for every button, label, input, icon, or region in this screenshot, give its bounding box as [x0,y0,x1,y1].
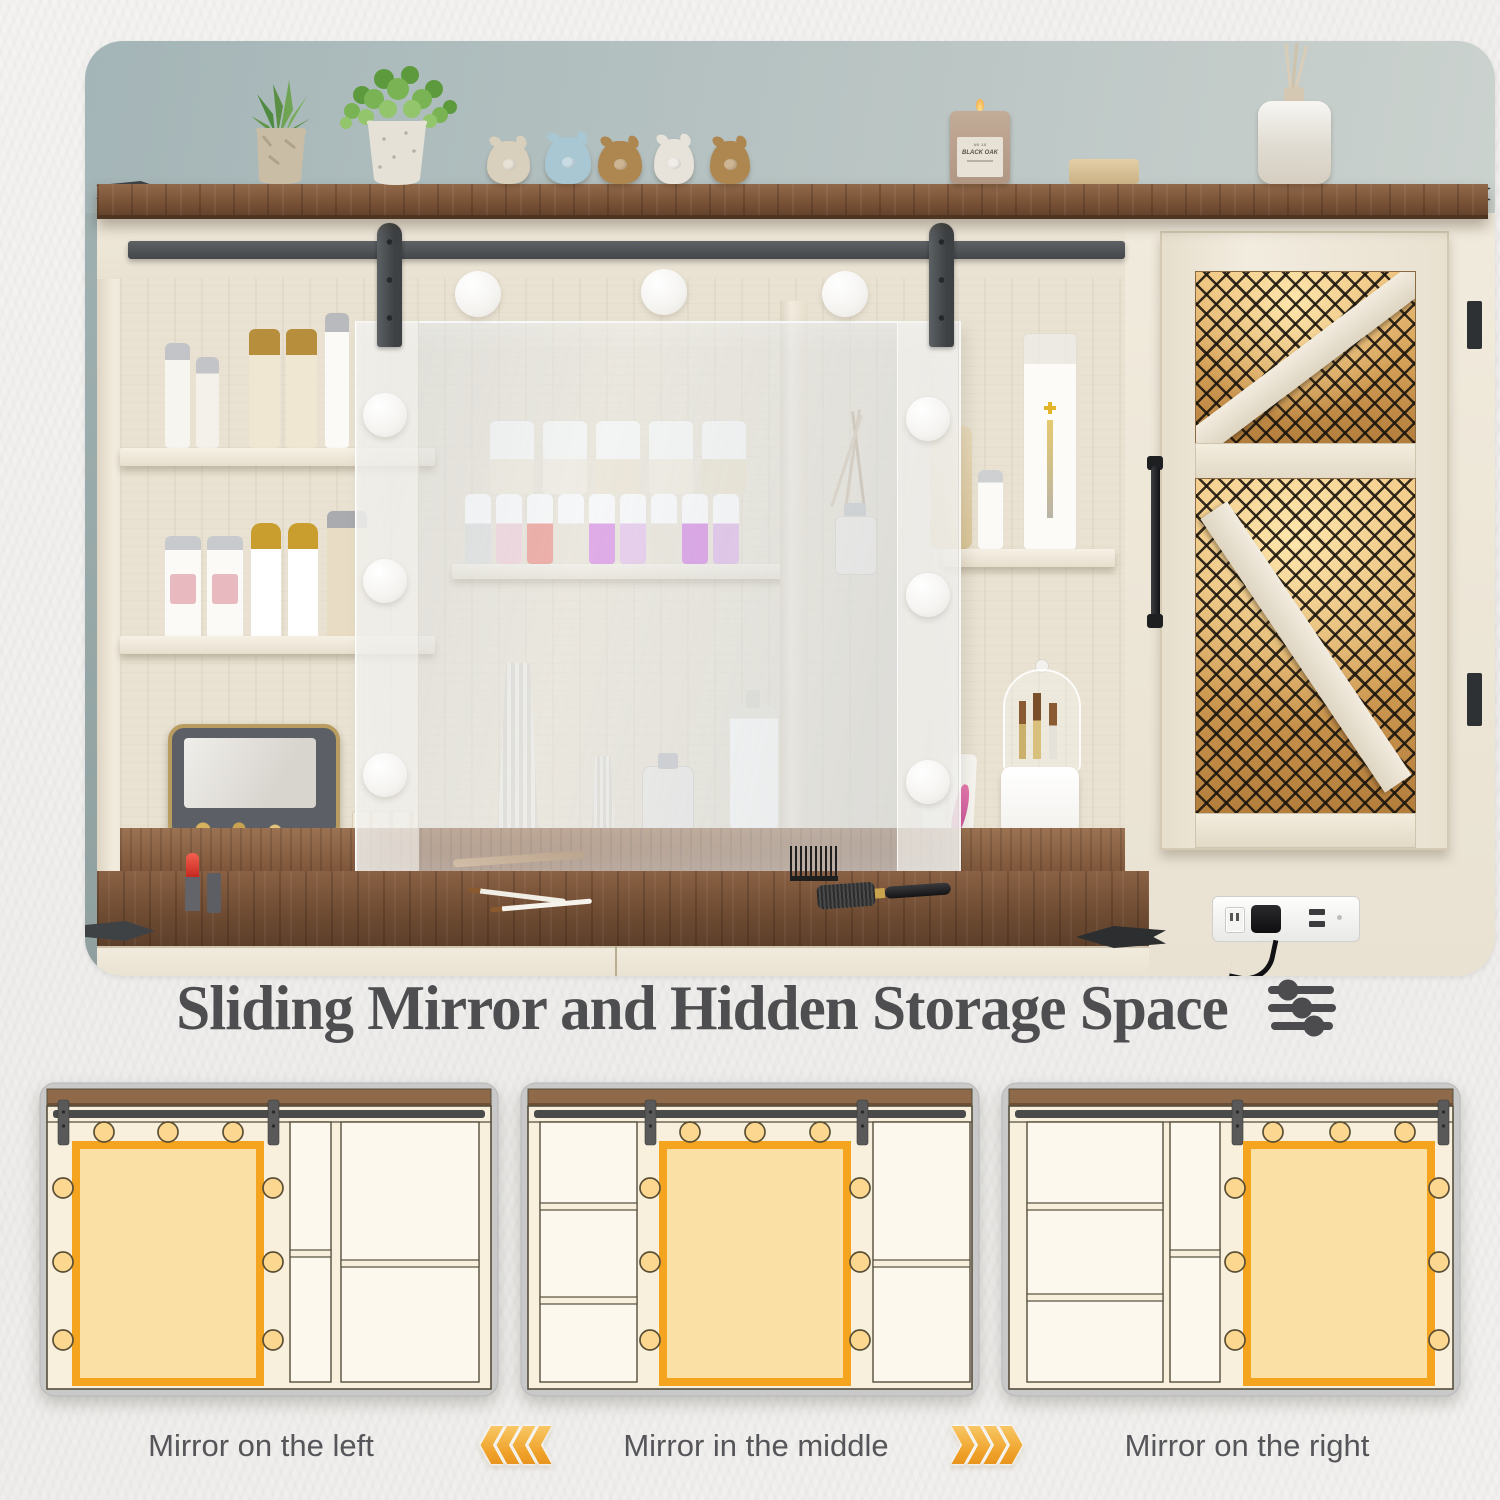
cosmetic-bottle-silver [325,313,349,448]
shelf-divider [1027,1294,1163,1301]
storage-bay [1027,1122,1163,1382]
shelf-divider [1027,1203,1163,1210]
storage-bay [540,1122,637,1382]
vanity-bulb [641,269,687,315]
pig-figurine [598,141,642,184]
door-hinge [1467,301,1482,349]
hanger-strap [268,1100,279,1145]
rail-hanger-strap [377,223,402,347]
scented-candle: N0 18 BLACK OAK [950,111,1010,184]
right-bay-shelf [943,549,1115,567]
storage-bay [341,1122,479,1382]
spray-bottle [978,470,1003,549]
wood-top-bar [1009,1089,1453,1106]
vanity-bulb [363,753,407,797]
pig-figurine [487,141,530,184]
mirror-position-diagrams [39,1082,1461,1397]
rail [1015,1110,1447,1118]
mesh-panel-lower [1195,478,1416,815]
diagram-bulb [263,1178,283,1198]
caption-row: Mirror on the left Mirror in the middle … [0,1418,1500,1480]
diagram-bulb [850,1330,870,1350]
diagram-bulb [53,1178,73,1198]
diagram-bulb [158,1122,178,1142]
diagram-bulb [1225,1252,1245,1272]
succulent-plant [245,76,315,184]
potted-plant [322,59,472,185]
diagram-bulb [1225,1178,1245,1198]
diagram-mirror-left [39,1082,499,1397]
diagram-mirror-right [1001,1082,1461,1397]
hanger-strap [1232,1100,1243,1145]
candle-label: BLACK OAK [957,150,1003,156]
chevrons-right-icon [952,1426,1023,1464]
storage-bay [873,1122,970,1382]
comb [790,846,838,881]
cosmetic-bottle-gold-cap [288,523,318,654]
diagram-bulb [1429,1330,1449,1350]
diagram-bulb [263,1252,283,1272]
pig-figurine [654,139,694,184]
plug [1251,905,1281,933]
diagram-bulb [1225,1330,1245,1350]
diagram-bulb [640,1178,660,1198]
diagram-bulb [810,1122,830,1142]
hanger-strap [645,1100,656,1145]
door-bottom-rail [1195,813,1416,848]
cosmetic-bottle-gold-cap [251,523,281,654]
pillar-candle-cross [1023,333,1077,551]
sliding-mirror-glass [355,321,961,877]
vanity-bulb [906,397,950,441]
diagram-bulb [53,1330,73,1350]
shelf-divider [290,1250,331,1257]
lipstick [185,853,200,911]
cosmetic-bottle-gold-pump [249,329,280,448]
cosmetic-bottle [196,357,219,448]
diagram-bulb [745,1122,765,1142]
page-title: Sliding Mirror and Hidden Storage Space [176,972,1228,1045]
diagram-mirror-middle [520,1082,980,1397]
mirror-diagram-left [39,1082,499,1397]
diagram-bulb [1429,1252,1449,1272]
diagram-bulb [223,1122,243,1142]
shelf-divider [540,1203,637,1210]
diagram-bulb [680,1122,700,1142]
chevrons-left-icon [481,1426,552,1464]
power-outlet-usb [1212,896,1360,942]
vanity-bulb [363,559,407,603]
section-title: Sliding Mirror and Hidden Storage Space [0,972,1500,1044]
reed-diffuser [1253,43,1333,184]
rail-hanger-strap [929,223,954,347]
hanger-strap [58,1100,69,1145]
diagram-bulb [94,1122,114,1142]
mirror [1247,1145,1431,1382]
cosmetic-bottle-gold-pump [286,329,317,448]
diagram-bulb [53,1252,73,1272]
hero-photo: N0 18 BLACK OAK [85,41,1495,976]
soap-bar [1069,159,1139,184]
shelf-divider [341,1260,479,1267]
diagram-bulb [850,1252,870,1272]
vanity-bulb [822,271,868,317]
caption-mirror-left: Mirror on the left [148,1428,374,1464]
desk-top [97,871,1149,946]
diagram-bulb [1395,1122,1415,1142]
diagram-bulb [640,1252,660,1272]
mesh-cabinet-door [1160,231,1449,850]
rail [534,1110,966,1118]
mirror [76,1145,260,1382]
door-mid-rail [1195,443,1416,480]
shelf-divider [1170,1250,1220,1257]
mesh-panel-upper [1195,271,1416,445]
shelf-divider [540,1297,637,1304]
pig-figurine [710,141,750,184]
diagram-bulb [263,1330,283,1350]
mirror-diagram-right [1001,1082,1461,1397]
pig-figurine [545,137,591,184]
mirror-diagram-middle [520,1082,980,1397]
shelf-divider [873,1260,970,1267]
vanity-bulb [363,393,407,437]
sliders-icon [1264,978,1340,1038]
diagram-bulb [850,1178,870,1198]
diagram-bulb [640,1330,660,1350]
wood-countertop [97,184,1488,219]
hanger-strap [1438,1100,1449,1145]
lipstick-cap [207,873,221,913]
diagram-bulb [1263,1122,1283,1142]
cosmetic-bottle [165,343,190,448]
mirror [663,1145,847,1382]
vanity-bulb [455,271,501,317]
caption-mirror-middle: Mirror in the middle [623,1428,888,1464]
caption-mirror-right: Mirror on the right [1125,1428,1370,1464]
door-hinge [1467,673,1482,726]
hanger-strap [857,1100,868,1145]
vanity-bulb [906,760,950,804]
door-handle [1143,456,1167,628]
vanity-bulb [906,573,950,617]
diagram-bulb [1429,1178,1449,1198]
barn-door-rail [128,241,1125,259]
wood-top-bar [528,1089,972,1106]
diagram-bulb [1330,1122,1350,1142]
